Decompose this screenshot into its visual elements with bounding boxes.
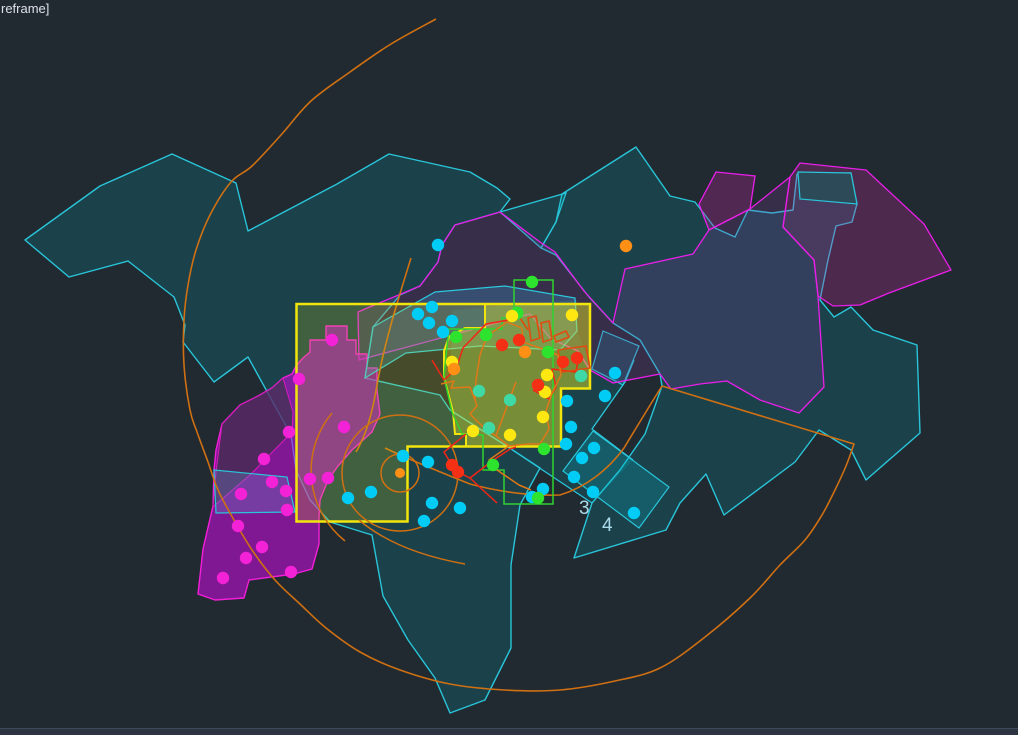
svg-text:4: 4 [602,515,613,536]
svg-text:reframe]: reframe] [1,1,49,16]
svg-text:3: 3 [579,498,590,519]
